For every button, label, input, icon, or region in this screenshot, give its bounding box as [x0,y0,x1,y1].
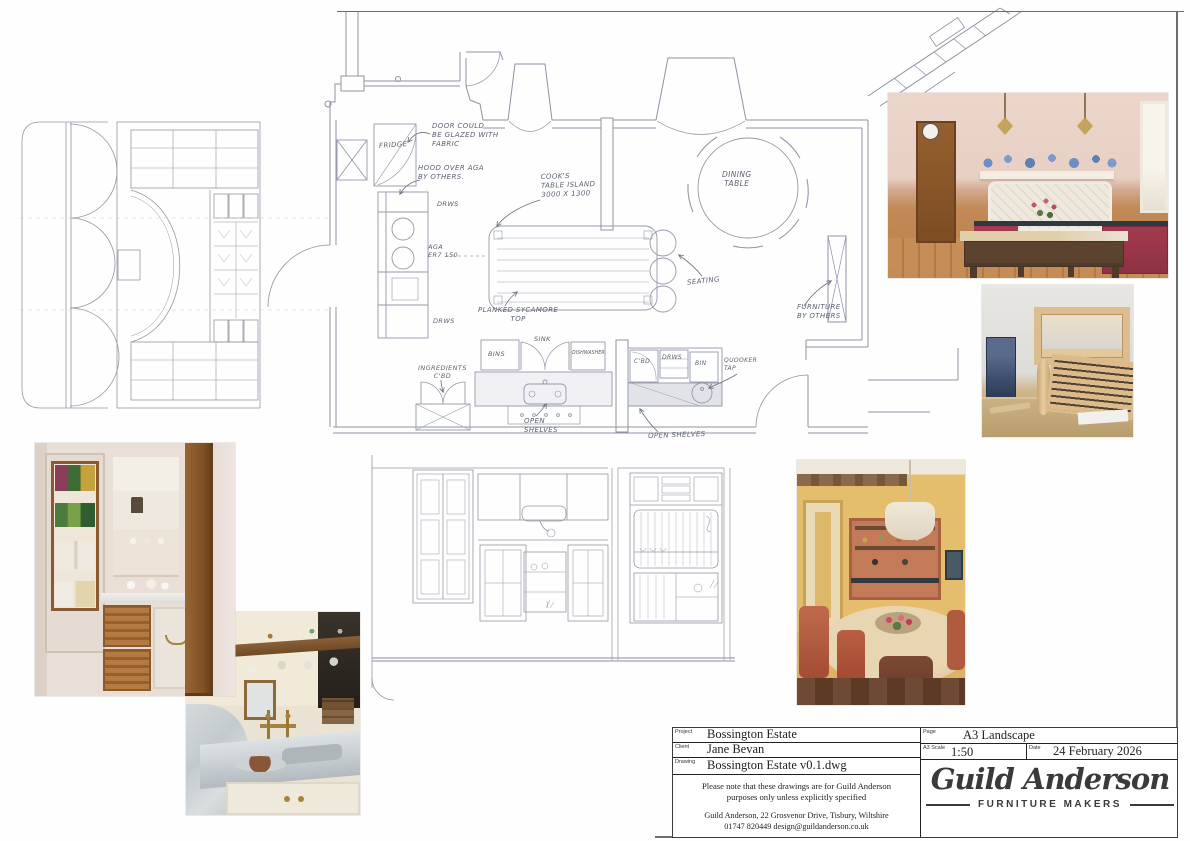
annotation-door-glazed: DOOR COULD BE GLAZED WITH FABRIC [432,122,499,148]
mugs [127,535,167,547]
brass-knob [284,796,290,802]
project-value: Bossington Estate [707,727,797,742]
annotation-drawers-top: DRWS [437,200,459,208]
photo-dining-room [797,460,965,705]
annotation-bin: BIN [695,360,707,368]
wood-door [916,121,956,243]
wall-picture [945,550,963,580]
window [1140,101,1168,213]
date-label: Date [1029,745,1041,751]
annotation-drawers-bottom: DRWS [433,317,455,325]
project-label: Project [675,729,692,735]
annotation-furniture-by-others: FURNITURE BY OTHERS [797,303,841,321]
flour-bags [55,581,95,607]
pendant-lantern [997,117,1013,135]
date-value: 24 February 2026 [1053,744,1142,759]
company-address: Guild Anderson, 22 Grosvenor Drive, Tisb… [673,810,920,821]
cake-stands [121,575,171,593]
tea-boxes [55,465,95,491]
page-value: A3 Landscape [963,728,1035,743]
annotation-cooks-table: COOK'S TABLE ISLAND 3000 X 1300 [541,171,596,199]
island-table [964,241,1124,267]
annotation-ingredients: INGREDIENTS C'BD [418,364,467,380]
corner-shelves [113,457,179,577]
photo-kitchen-inspiration [888,93,1168,278]
turned-leg [1037,359,1050,415]
annotation-quooker-tap: QUOOKER TAP [724,357,757,372]
wall-clock [922,123,939,140]
oak-pilaster [185,443,213,696]
scale-label: A3 Scale [923,745,945,751]
photo-workshop [982,285,1133,437]
annotation-drawers-right: DRWS [662,354,682,362]
ceiling-beam [797,474,907,486]
slatted-rack [1050,357,1133,417]
annotation-hood-over-aga: HOOD OVER AGA BY OTHERS. [418,164,484,182]
logo-rule [926,804,970,806]
flour-bags [55,541,95,569]
guild-anderson-logo: Guild Anderson FURNITURE MAKERS [925,761,1175,835]
drawing-label: Drawing [675,759,695,765]
basket-drawer [105,651,149,689]
flower-arrangement [1026,197,1060,227]
serving-dish [234,756,286,772]
pendant-lantern [1004,93,1006,119]
table-centrepiece [875,612,921,634]
pendant-lantern [1077,117,1093,135]
brass-taps [260,710,296,740]
title-block: Project Bossington Estate Client Jane Be… [672,727,1178,838]
annotation-planked-top: PLANKED SYCAMORE TOP [478,306,558,324]
dark-floor [797,678,965,705]
page-label: Page [923,729,936,735]
leather-chair [947,610,965,670]
sheet-top-edge [337,11,1184,12]
pendant-lantern [1084,93,1086,119]
company-contact: 01747 820449 design@guildanderson.co.uk [673,821,920,832]
blue-plates [978,151,1118,171]
annotation-dishwasher: DISHWASHER [572,351,605,357]
logo-text: Guild Anderson [925,761,1175,797]
island-leg [1018,267,1024,277]
egg-rack [322,698,354,724]
brass-knob [298,796,304,802]
annotation-bins: BINS [488,350,505,358]
annotation-sink: SINK [534,335,551,343]
island-table [960,231,1128,241]
annotation-aga: AGA ER7 150 [428,243,458,259]
client-label: Client [675,744,689,750]
logo-subtitle: FURNITURE MAKERS [978,799,1122,810]
annotation-open-shelves-left: OPEN SHELVES [524,417,558,435]
disclaimer-note: Please note that these drawings are for … [673,781,920,803]
drawing-sheet: DOOR COULD BE GLAZED WITH FABRIC FRIDGE … [0,0,1190,841]
client-value: Jane Bevan [707,742,764,757]
mantel-shelf [980,171,1114,179]
bottom-elevation-sketch [372,455,735,700]
photo-pantry [35,443,235,696]
marble-counter [101,593,187,603]
logo-rule [1130,804,1174,806]
island-leg [1068,267,1074,277]
pale-wall-door [213,443,235,696]
pendant-lamp-cord [909,460,911,504]
leather-chair [799,606,829,678]
dresser-counter [851,578,939,583]
basket-drawer [105,607,149,645]
coffee-pot [131,497,143,513]
annotation-dining-table: DINING TABLE [722,170,752,189]
annotation-cupboard: C'BD [634,358,650,366]
drawing-value: Bossington Estate v0.1.dwg [707,758,847,773]
workshop-machine [986,337,1016,399]
tea-boxes [55,503,95,527]
island-leg [970,267,977,278]
plan-walls [268,12,958,433]
left-elevation-sketch [20,122,330,408]
pendant-lamp-shade [885,502,935,540]
scale-value: 1:50 [951,745,973,760]
cream-cabinet [226,782,360,815]
sheet-right-edge [1176,11,1178,837]
island-leg [1112,267,1119,278]
table-frame-opening [1042,315,1122,349]
